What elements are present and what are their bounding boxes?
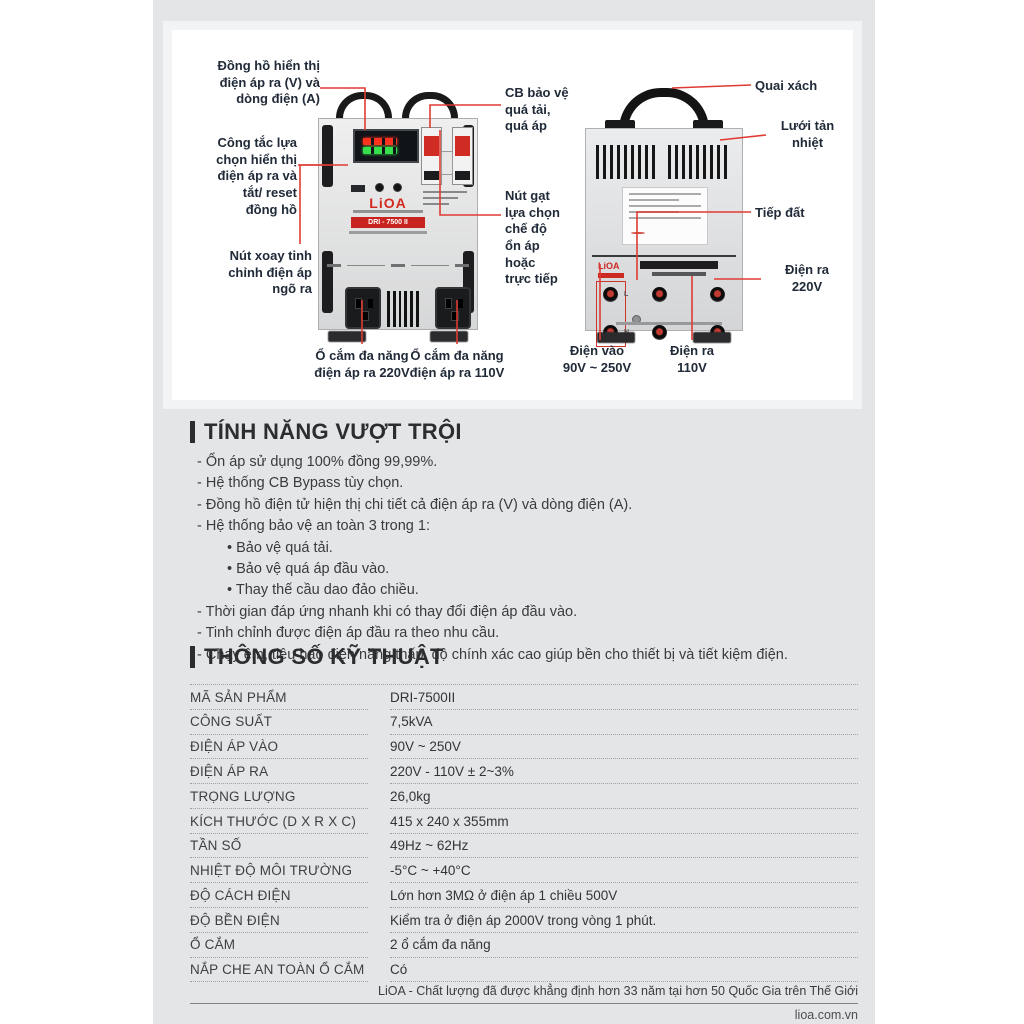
spec-value: 415 x 240 x 355mm — [390, 809, 858, 834]
reset-knob — [375, 183, 384, 192]
feature-item: - Hệ thống bảo vệ an toàn 3 trong 1: — [197, 516, 837, 537]
spec-label: ĐIỆN ÁP VÀO — [190, 735, 368, 760]
product-photo-card: LiOA DRI - 7500 II — [172, 30, 853, 400]
spec-label: ĐIỆN ÁP RA — [190, 759, 368, 784]
back-body: LiOA L N — [585, 128, 743, 331]
spec-value: Kiểm tra ở điện áp 2000V trong vòng 1 ph… — [390, 908, 858, 933]
label-vent-grid: Lưới tản nhiệt — [765, 118, 850, 151]
quality-stamp — [631, 232, 645, 234]
specs-section-title: THÔNG SỐ KỸ THUẬT — [190, 644, 444, 670]
table-row: TRỌNG LƯỢNG26,0kg — [190, 784, 858, 809]
spec-value: Lớn hơn 3MΩ ở điện áp 1 chiều 500V — [390, 883, 858, 908]
socket-110v — [435, 287, 471, 329]
table-row: TẦN SỐ49Hz ~ 62Hz — [190, 834, 858, 859]
label-handle: Quai xách — [755, 78, 850, 95]
label-mode-switch: Nút gạt lựa chọn chế độ ổn áp hoặc trực … — [505, 188, 595, 288]
spec-value: DRI-7500II — [390, 685, 858, 710]
panel-print — [423, 191, 467, 209]
spec-sticker — [622, 187, 708, 245]
output-terminal-110-b — [652, 325, 667, 340]
front-vent-slots — [387, 291, 419, 327]
spec-label: KÍCH THƯỚC (D X R X C) — [190, 809, 368, 834]
label-in-voltage: Điện vào 90V ~ 250V — [537, 343, 657, 376]
heat-vent-grid-left — [596, 145, 655, 179]
spec-label: TẦN SỐ — [190, 834, 368, 859]
front-device-photo: LiOA DRI - 7500 II — [318, 92, 478, 342]
front-body: LiOA DRI - 7500 II — [318, 118, 478, 330]
display-selector-switch — [351, 185, 365, 192]
table-row: Ổ CẮM2 ổ cắm đa năng — [190, 933, 858, 958]
model-badge: DRI - 7500 II — [351, 217, 425, 228]
table-row: CÔNG SUẤT7,5kVA — [190, 710, 858, 735]
mode-toggle — [441, 151, 453, 175]
spec-label: ĐỘ BỀN ĐIỆN — [190, 908, 368, 933]
feature-item: - Hệ thống CB Bypass tùy chọn. — [197, 473, 837, 494]
spec-label: NHIỆT ĐỘ MÔI TRƯỜNG — [190, 858, 368, 883]
content-panel: LiOA DRI - 7500 II — [153, 0, 875, 1024]
table-row: KÍCH THƯỚC (D X R X C)415 x 240 x 355mm — [190, 809, 858, 834]
feature-item: - Tinh chỉnh được điện áp đầu ra theo nh… — [197, 623, 837, 644]
spec-value: Có — [390, 958, 858, 983]
brand-logo-back: LiOA — [598, 261, 620, 271]
spec-value: 220V - 110V ± 2~3% — [390, 759, 858, 784]
table-row: MÃ SẢN PHẨMDRI-7500II — [190, 685, 858, 710]
footer-divider — [190, 1003, 858, 1004]
back-title-bar — [640, 261, 718, 269]
label-out-110: Điện ra 110V — [642, 343, 742, 376]
spec-table: MÃ SẢN PHẨMDRI-7500II CÔNG SUẤT7,5kVA ĐI… — [190, 684, 858, 982]
label-ground: Tiếp đất — [755, 205, 845, 222]
label-socket-110: Ổ cắm đa năng điện áp ra 110V — [382, 348, 532, 381]
spec-label: Ổ CẮM — [190, 933, 368, 958]
table-row: ĐỘ CÁCH ĐIỆNLớn hơn 3MΩ ở điện áp 1 chiề… — [190, 883, 858, 908]
spec-value: 7,5kVA — [390, 710, 858, 735]
table-row: NẮP CHE AN TOÀN Ổ CẮMCó — [190, 958, 858, 983]
spec-label: CÔNG SUẤT — [190, 710, 368, 735]
spec-value: 90V ~ 250V — [390, 735, 858, 760]
spec-value: 49Hz ~ 62Hz — [390, 834, 858, 859]
feature-item: - Đồng hồ điện tử hiện thị chi tiết cả đ… — [197, 495, 837, 516]
footer: LiOA - Chất lượng đã được khẳng định hơn… — [190, 984, 858, 1022]
digital-meter-display — [353, 129, 419, 163]
output-terminal-220-a — [710, 287, 725, 302]
circuit-breakers — [421, 127, 473, 187]
label-out-220: Điện ra 220V — [763, 262, 851, 295]
feature-subitem: • Bảo vệ quá tải. — [197, 538, 837, 559]
spec-label: TRỌNG LƯỢNG — [190, 784, 368, 809]
spec-label: ĐỘ CÁCH ĐIỆN — [190, 883, 368, 908]
socket-220v — [345, 287, 381, 329]
label-selector-switch: Công tắc lựa chọn hiển thị điện áp ra và… — [190, 135, 297, 218]
spec-value: -5°C ~ +40°C — [390, 858, 858, 883]
table-row: NHIỆT ĐỘ MÔI TRƯỜNG-5°C ~ +40°C — [190, 858, 858, 883]
title-bar-mark — [190, 646, 195, 668]
feature-subitem: • Thay thế cầu dao đảo chiều. — [197, 580, 837, 601]
panel-divider — [327, 263, 469, 268]
input-terminal-l — [603, 287, 618, 302]
features-section-title: TÍNH NĂNG VƯỢT TRỘI — [190, 419, 462, 445]
spec-label: MÃ SẢN PHẨM — [190, 685, 368, 710]
brand-logo-front: LiOA — [353, 195, 423, 211]
spec-value: 2 ổ cắm đa năng — [390, 933, 858, 958]
features-list: - Ổn áp sử dụng 100% đồng 99,99%. - Hệ t… — [197, 452, 837, 666]
feature-item: - Thời gian đáp ứng nhanh khi có thay đổ… — [197, 602, 837, 623]
table-row: ĐỘ BỀN ĐIỆNKiểm tra ở điện áp 2000V tron… — [190, 908, 858, 933]
table-row: ĐIỆN ÁP VÀO90V ~ 250V — [190, 735, 858, 760]
features-title-text: TÍNH NĂNG VƯỢT TRỘI — [204, 419, 462, 445]
output-terminal-110-a — [652, 287, 667, 302]
footer-website: lioa.com.vn — [190, 1008, 858, 1022]
heat-vent-grid-right — [668, 145, 727, 179]
back-device-photo: LiOA L N — [585, 88, 743, 343]
specs-title-text: THÔNG SỐ KỸ THUẬT — [204, 644, 444, 670]
label-tuning-knob: Nút xoay tinh chỉnh điện áp ngõ ra — [202, 248, 312, 298]
spec-label: NẮP CHE AN TOÀN Ổ CẮM — [190, 958, 368, 983]
label-meter: Đồng hồ hiển thị điện áp ra (V) và dòng … — [202, 58, 320, 108]
title-bar-mark — [190, 421, 195, 443]
label-cb-protect: CB bảo vệ quá tải, quá áp — [505, 85, 595, 135]
feature-subitem: • Bảo vệ quá áp đầu vào. — [197, 559, 837, 580]
tuning-knob — [393, 183, 402, 192]
footer-tagline: LiOA - Chất lượng đã được khẳng định hơn… — [190, 984, 858, 998]
table-row: ĐIỆN ÁP RA220V - 110V ± 2~3% — [190, 759, 858, 784]
spec-value: 26,0kg — [390, 784, 858, 809]
product-spec-page: LiOA DRI - 7500 II — [0, 0, 1024, 1024]
feature-item: - Ổn áp sử dụng 100% đồng 99,99%. — [197, 452, 837, 473]
